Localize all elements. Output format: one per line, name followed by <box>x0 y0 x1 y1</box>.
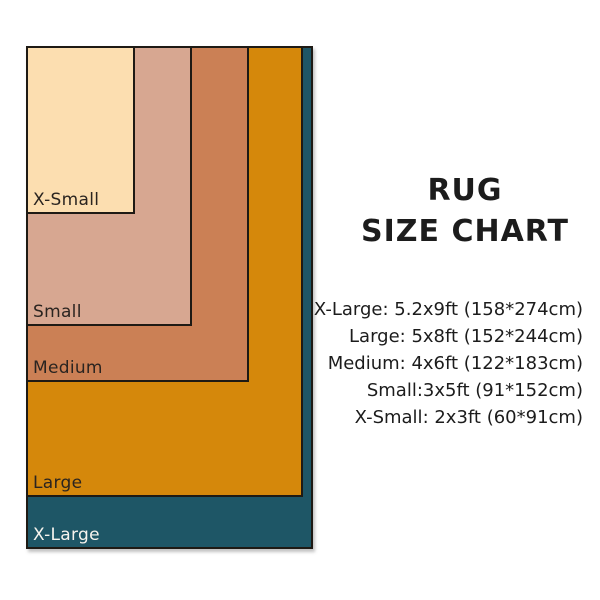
page-title-line-2: SIZE CHART <box>330 211 600 252</box>
size-spec-large: Large: 5x8ft (152*244cm) <box>314 323 583 350</box>
size-spec-medium: Medium: 4x6ft (122*183cm) <box>314 350 583 377</box>
rug-size-chart-infographic: X-Large Large Medium Small X-Small RUG S… <box>0 0 600 600</box>
rug-rect-x-small: X-Small <box>26 46 135 214</box>
page-title: RUG SIZE CHART <box>330 170 600 252</box>
rug-rect-small-label: Small <box>33 302 82 322</box>
rug-rect-large-label: Large <box>33 473 82 493</box>
size-spec-list: X-Large: 5.2x9ft (158*274cm) Large: 5x8f… <box>314 296 583 431</box>
rug-rect-medium-label: Medium <box>33 358 103 378</box>
page-title-line-1: RUG <box>330 170 600 211</box>
rug-rect-x-small-label: X-Small <box>33 190 99 210</box>
size-spec-small: Small:3x5ft (91*152cm) <box>314 377 583 404</box>
rug-rect-x-large-label: X-Large <box>33 525 100 545</box>
size-spec-x-small: X-Small: 2x3ft (60*91cm) <box>314 404 583 431</box>
size-spec-x-large: X-Large: 5.2x9ft (158*274cm) <box>314 296 583 323</box>
